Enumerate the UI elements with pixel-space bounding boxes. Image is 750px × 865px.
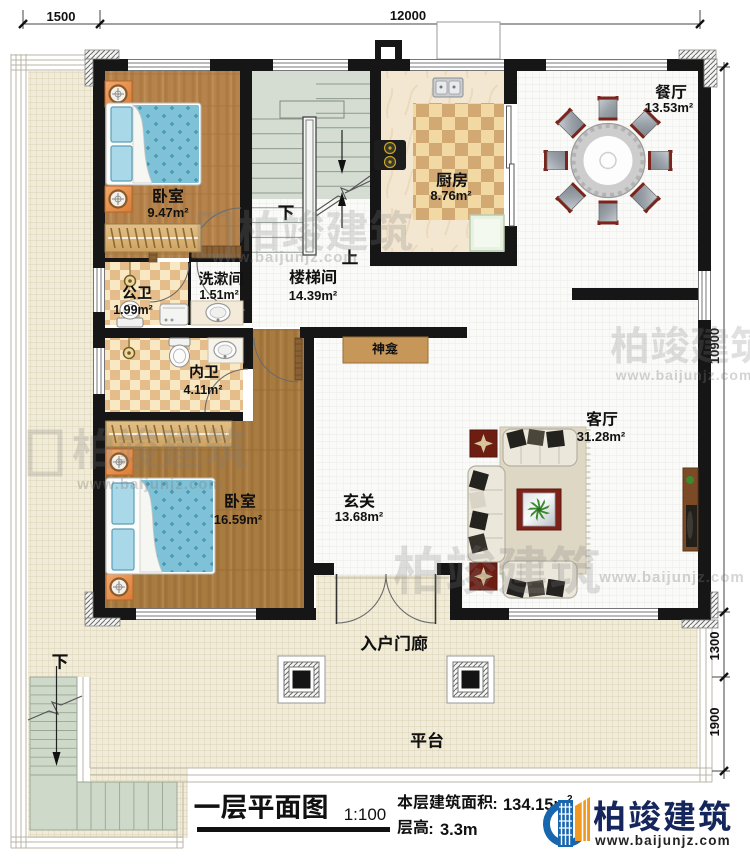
svg-text:31.28m²: 31.28m² [577,429,626,444]
svg-text:www.baijunjz.com: www.baijunjz.com [211,249,357,266]
svg-text:1.51m²: 1.51m² [199,288,239,302]
svg-text:1900: 1900 [707,708,722,737]
svg-text:4.11m²: 4.11m² [184,383,223,397]
svg-text:16.59m²: 16.59m² [214,512,263,527]
svg-text:1.99m²: 1.99m² [113,303,153,317]
svg-text:9.47m²: 9.47m² [147,205,189,220]
svg-text:12000: 12000 [390,8,426,23]
svg-text:1500: 1500 [47,9,76,24]
svg-text:1:100: 1:100 [344,805,387,824]
svg-text:13.53m²: 13.53m² [645,100,694,115]
svg-text:13.68m²: 13.68m² [335,509,384,524]
svg-text:1300: 1300 [707,632,722,661]
svg-text::: : [492,796,497,813]
svg-text:14.39m²: 14.39m² [289,288,338,303]
svg-text:www.baijunjz.com: www.baijunjz.com [598,569,744,586]
svg-text:www.baijunjz.com: www.baijunjz.com [76,476,222,493]
svg-text:8.76m²: 8.76m² [430,188,472,203]
svg-text:3.3m: 3.3m [440,821,478,839]
svg-text::: : [428,821,433,838]
svg-text:www.baijunjz.com: www.baijunjz.com [594,833,731,848]
svg-text:www.baijunjz.com: www.baijunjz.com [615,367,750,383]
